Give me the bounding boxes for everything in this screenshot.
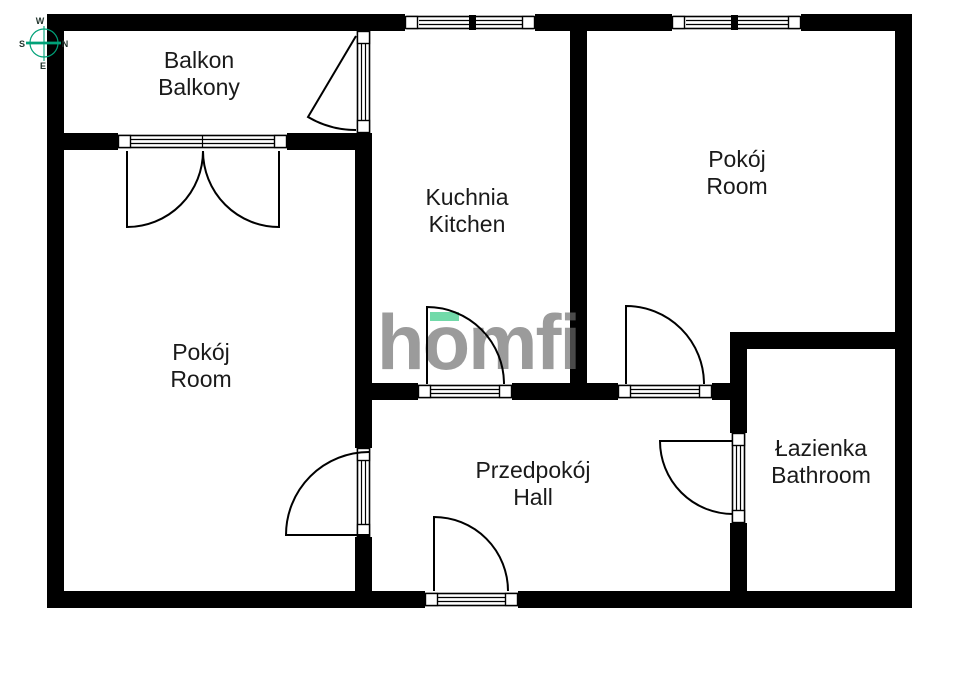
balcony-door-frame: [355, 31, 372, 133]
left-room-door-frame: [355, 448, 372, 537]
wall-bathroom-top: [730, 332, 895, 349]
watermark-text: homfi: [377, 298, 579, 386]
hall-label-en: Hall: [513, 484, 553, 510]
wall-leftroom-east-upper: [355, 133, 372, 448]
room-left-label-en: Room: [170, 366, 231, 392]
wall-bathroom-west-upper: [730, 332, 747, 433]
wall-balcony-bottom-left: [47, 133, 118, 150]
right-room-door-swing: [626, 306, 704, 384]
bathroom-label-en: Bathroom: [771, 462, 871, 488]
compass-north-label: N: [62, 39, 69, 49]
bathroom-label-pl: Łazienka: [775, 435, 867, 461]
room-right-label-en: Room: [706, 173, 767, 199]
floor-plan-canvas: homfi Balkon Balkony Kuchnia Kitchen Pok…: [0, 0, 960, 679]
wall-right: [895, 14, 912, 608]
wall-leftroom-east-lower: [355, 537, 372, 591]
room-label-room-left: Pokój Room: [170, 339, 231, 392]
compass-east-label: E: [40, 61, 46, 71]
kitchen-window: [405, 14, 535, 31]
compass-west-label: W: [36, 16, 45, 26]
room-left-label-pl: Pokój: [172, 339, 230, 365]
entrance-door-swing: [434, 517, 508, 591]
balcony-label-en: Balkony: [158, 74, 240, 100]
room-label-bathroom: Łazienka Bathroom: [771, 435, 871, 488]
right-room-hall-door-frame: [618, 383, 712, 400]
french-door-left-leaf: [127, 151, 203, 227]
bathroom-door-swing: [660, 441, 733, 514]
balcony-label-pl: Balkon: [164, 47, 234, 73]
compass-south-label: S: [19, 39, 25, 49]
entrance-door-frame: [425, 591, 518, 608]
french-door-right-leaf: [203, 151, 279, 227]
room-right-label-pl: Pokój: [708, 146, 766, 172]
hall-label-pl: Przedpokój: [475, 457, 590, 483]
kitchen-label-en: Kitchen: [429, 211, 506, 237]
room-label-balcony: Balkon Balkony: [158, 47, 240, 100]
floor-plan-svg: homfi Balkon Balkony Kuchnia Kitchen Pok…: [0, 0, 960, 679]
room-label-hall: Przedpokój Hall: [475, 457, 590, 510]
kitchen-label-pl: Kuchnia: [425, 184, 508, 210]
wall-top-middle-segment: [535, 14, 672, 31]
watermark: homfi: [377, 298, 579, 386]
right-room-window: [672, 14, 801, 31]
bathroom-door-frame: [730, 433, 747, 523]
room-labels: Balkon Balkony Kuchnia Kitchen Pokój Roo…: [158, 47, 871, 510]
wall-left: [47, 14, 64, 608]
room-label-room-right: Pokój Room: [706, 146, 767, 199]
watermark-accent-bar: [430, 312, 459, 321]
balcony-door-swing: [308, 36, 356, 130]
wall-bottom-right-segment: [518, 591, 912, 608]
wall-top-left-segment: [47, 14, 405, 31]
room-label-kitchen: Kuchnia Kitchen: [425, 184, 508, 237]
balcony-french-door-frame: [118, 133, 287, 150]
wall-bathroom-west-lower: [730, 523, 747, 591]
wall-bottom-left-segment: [47, 591, 425, 608]
